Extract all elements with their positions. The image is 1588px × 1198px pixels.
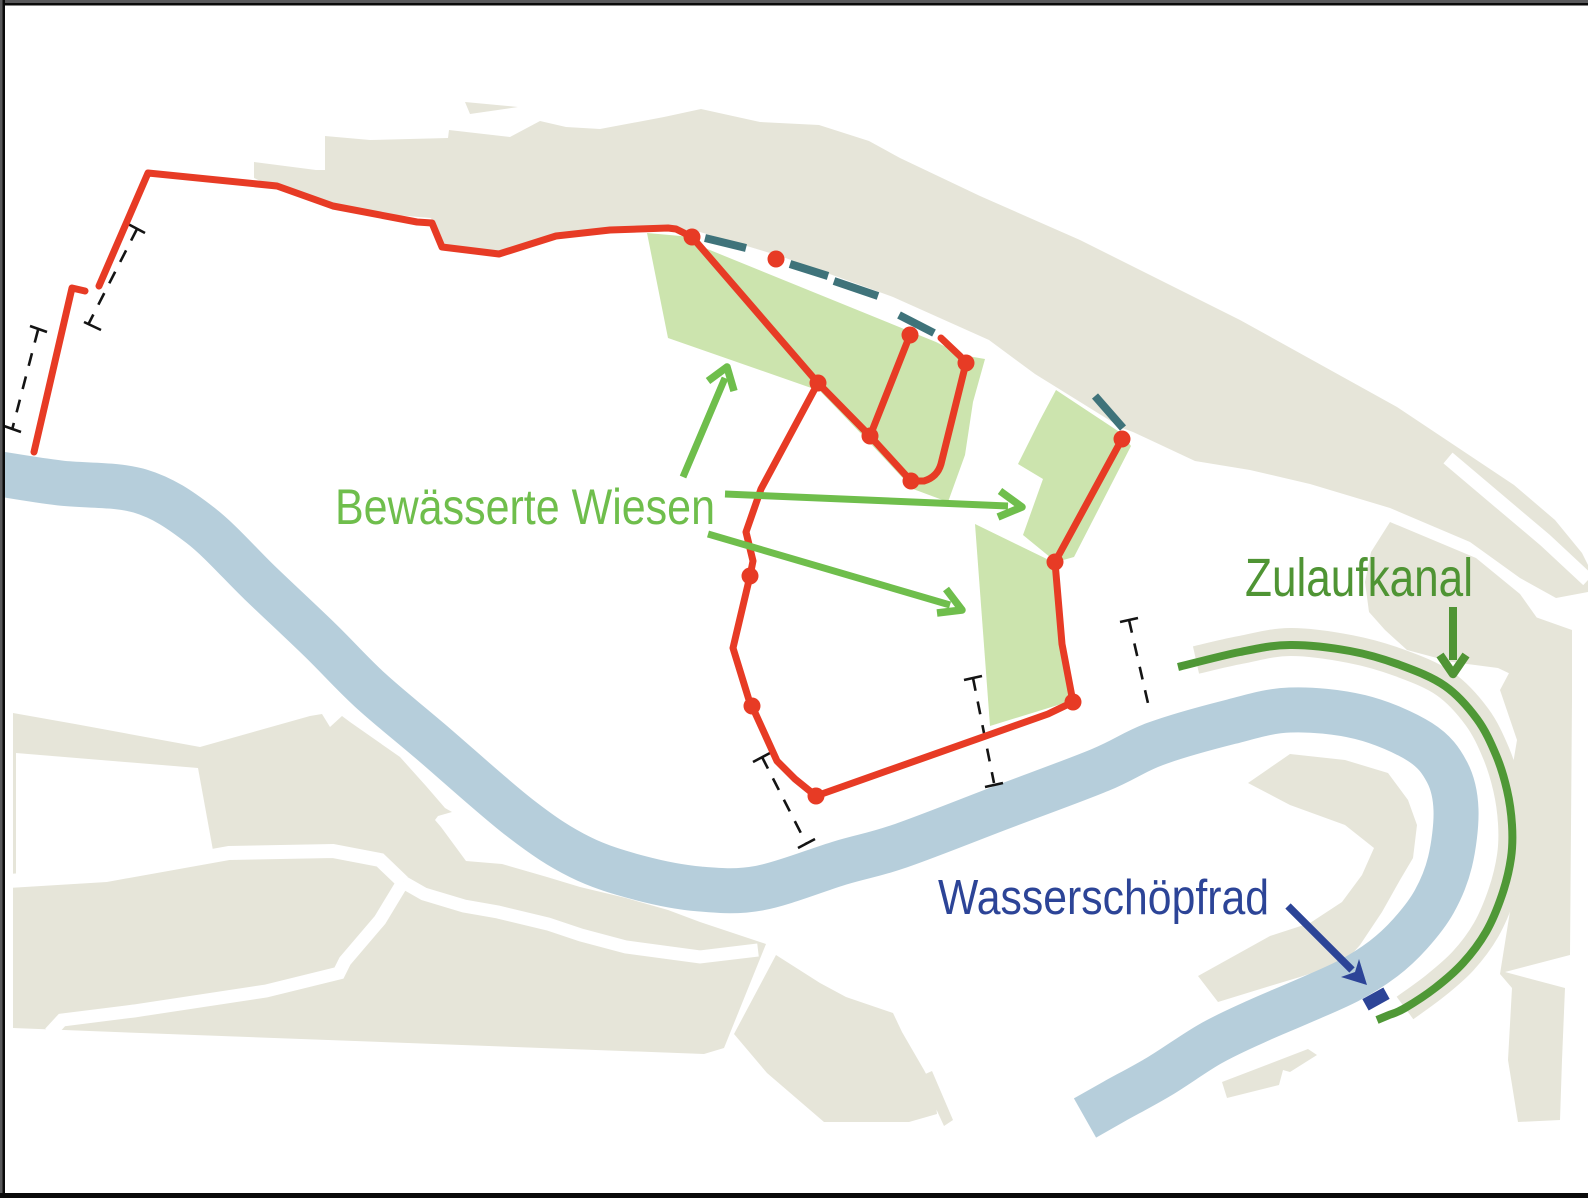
svg-text:Zulaufkanal: Zulaufkanal — [1245, 548, 1473, 608]
svg-text:Bewässerte Wiesen: Bewässerte Wiesen — [335, 479, 715, 535]
svg-text:Wasserschöpfrad: Wasserschöpfrad — [938, 871, 1269, 925]
